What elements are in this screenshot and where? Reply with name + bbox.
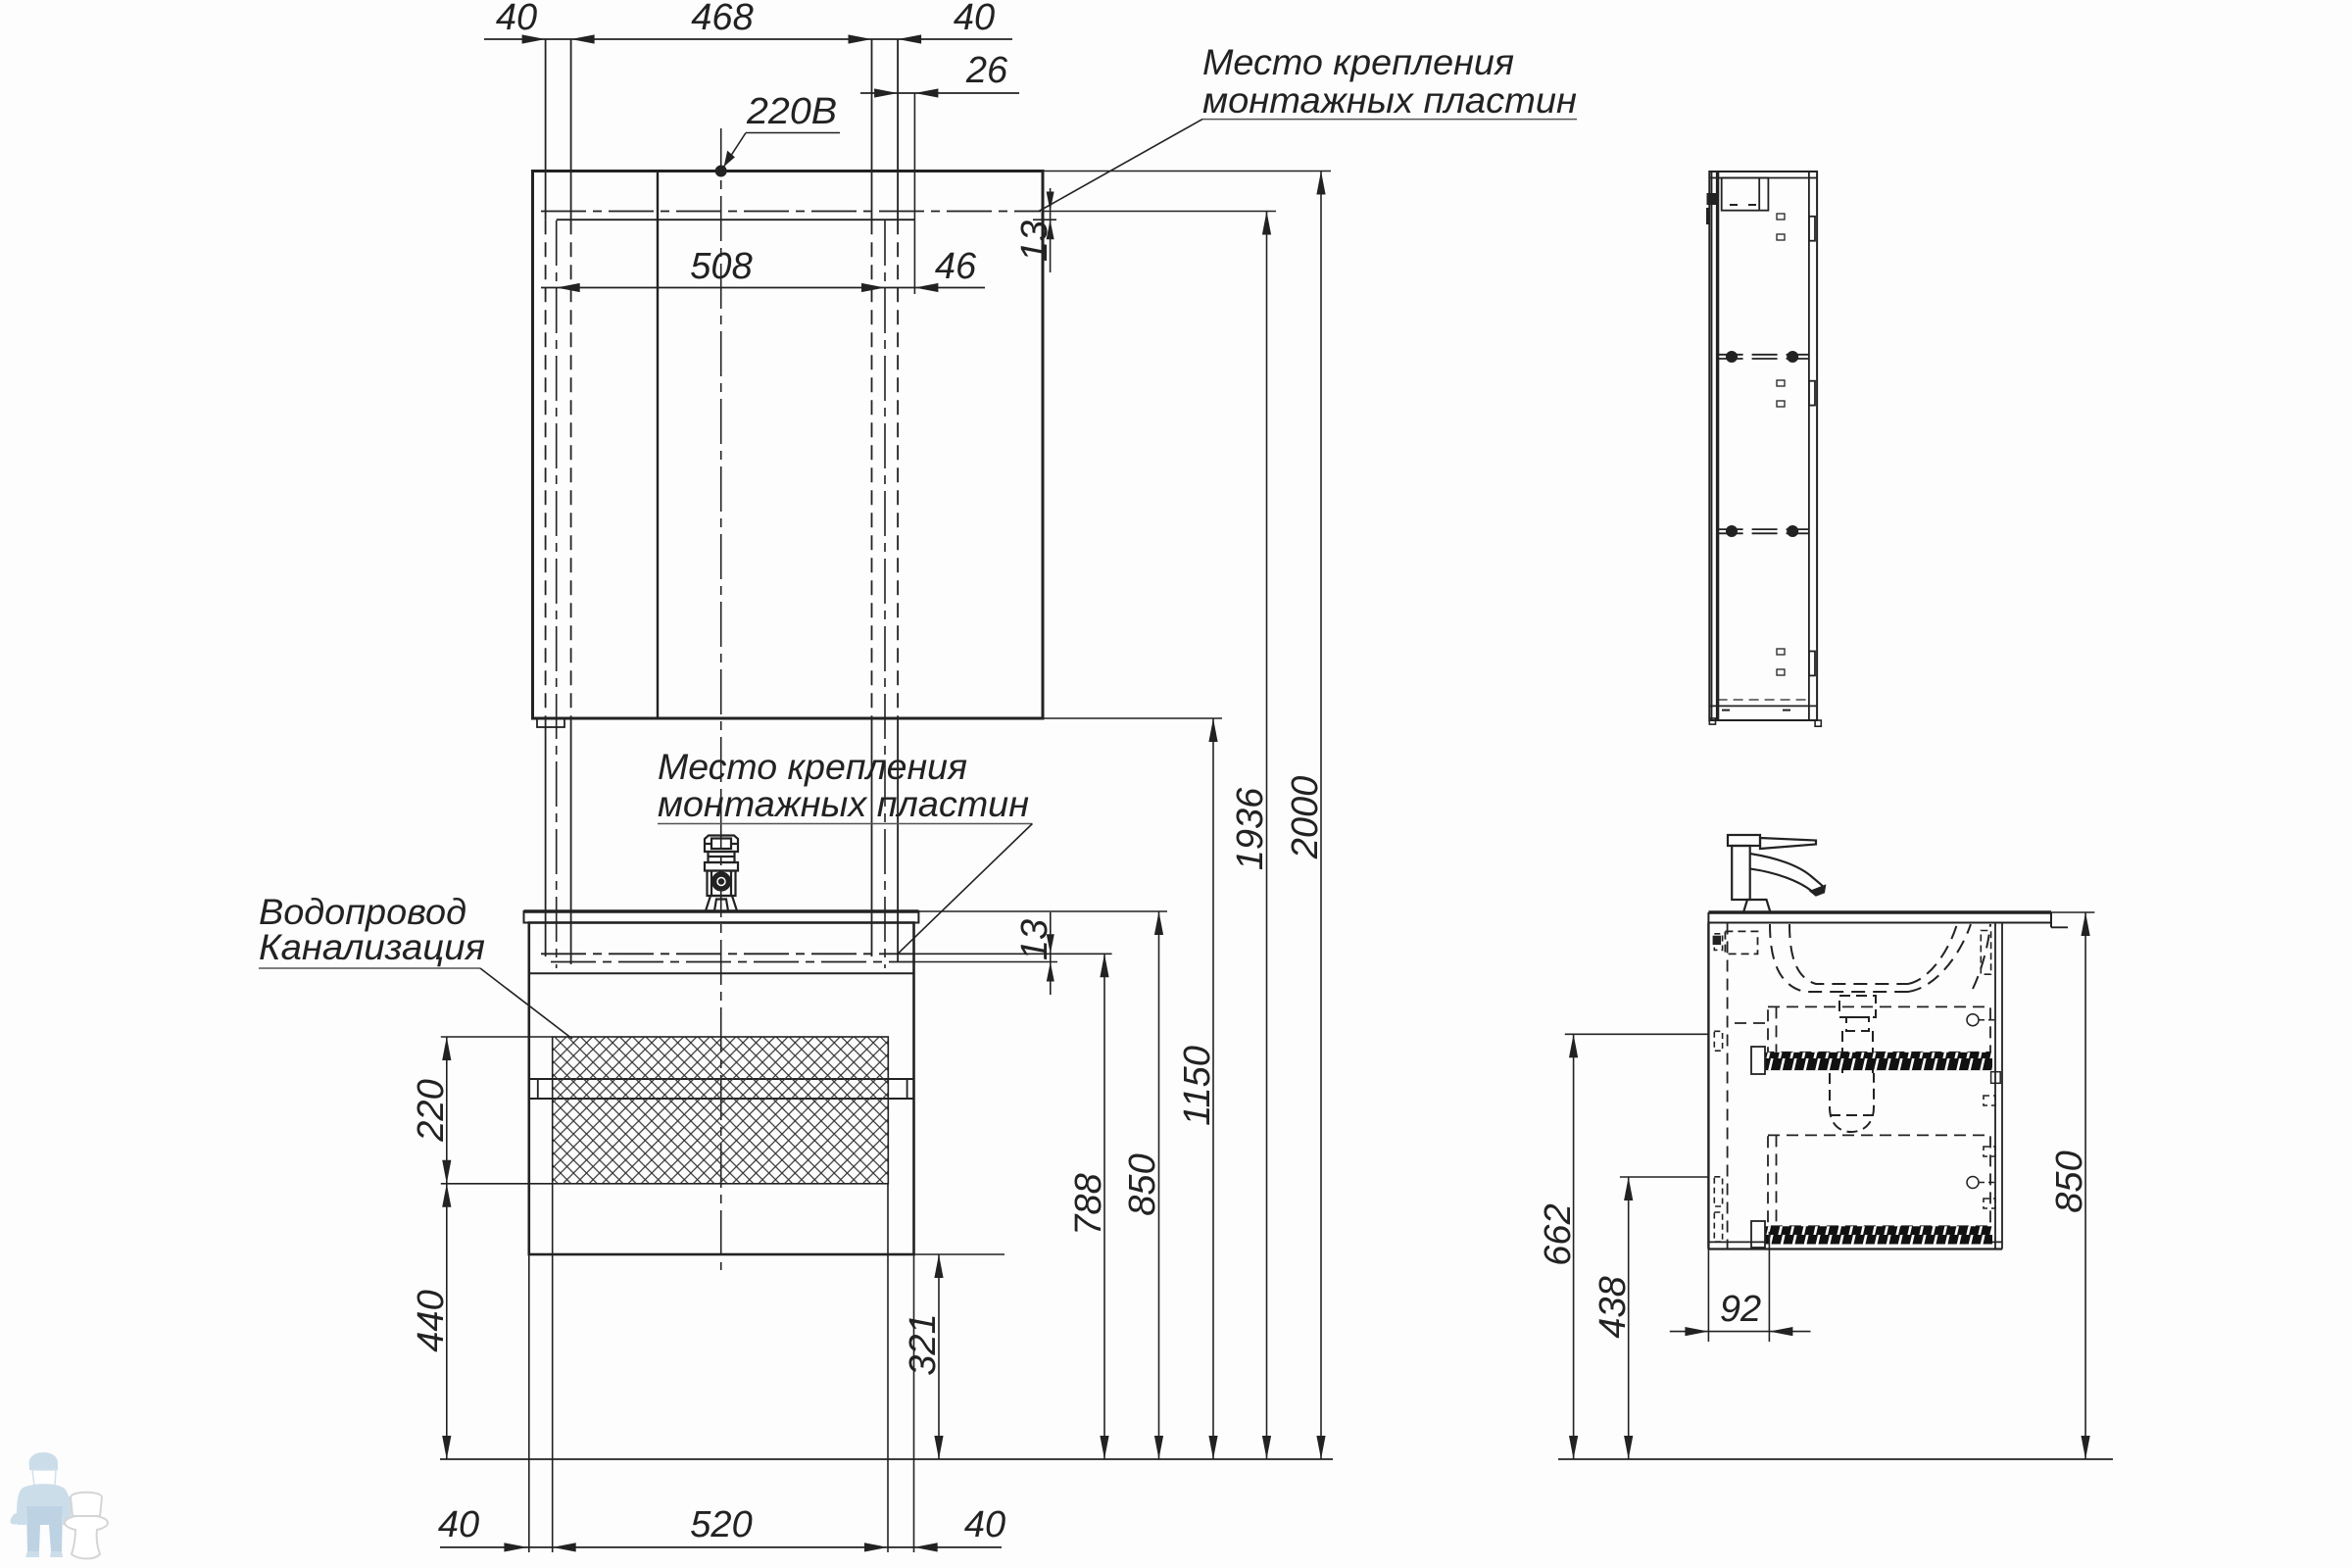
- svg-text:2000: 2000: [1285, 776, 1326, 860]
- svg-text:Место крепления: Место крепления: [1202, 42, 1514, 82]
- svg-text:468: 468: [691, 0, 753, 38]
- svg-text:520: 520: [690, 1504, 752, 1545]
- svg-text:40: 40: [954, 0, 995, 38]
- svg-text:монтажных пластин: монтажных пластин: [1202, 80, 1577, 121]
- svg-text:Место крепления: Место крепления: [658, 747, 967, 787]
- svg-text:850: 850: [2049, 1151, 2090, 1212]
- svg-text:440: 440: [411, 1290, 452, 1351]
- svg-text:40: 40: [964, 1504, 1005, 1545]
- svg-text:Водопровод: Водопровод: [259, 892, 466, 932]
- svg-text:850: 850: [1122, 1153, 1163, 1215]
- svg-text:40: 40: [496, 0, 537, 38]
- svg-text:438: 438: [1592, 1276, 1634, 1338]
- svg-text:321: 321: [903, 1313, 944, 1375]
- svg-text:13: 13: [1014, 220, 1055, 262]
- svg-text:46: 46: [935, 246, 977, 287]
- svg-text:1150: 1150: [1177, 1046, 1218, 1126]
- svg-text:26: 26: [965, 50, 1008, 91]
- svg-text:92: 92: [1720, 1289, 1761, 1330]
- svg-text:220: 220: [411, 1079, 452, 1142]
- svg-text:1936: 1936: [1230, 787, 1271, 870]
- svg-text:220В: 220В: [746, 91, 837, 132]
- svg-text:13: 13: [1014, 919, 1055, 960]
- svg-text:508: 508: [690, 246, 752, 287]
- svg-text:788: 788: [1068, 1173, 1109, 1235]
- svg-text:40: 40: [438, 1504, 479, 1545]
- svg-text:монтажных пластин: монтажных пластин: [658, 784, 1029, 824]
- svg-text:662: 662: [1538, 1203, 1579, 1265]
- svg-text:Канализация: Канализация: [259, 927, 485, 967]
